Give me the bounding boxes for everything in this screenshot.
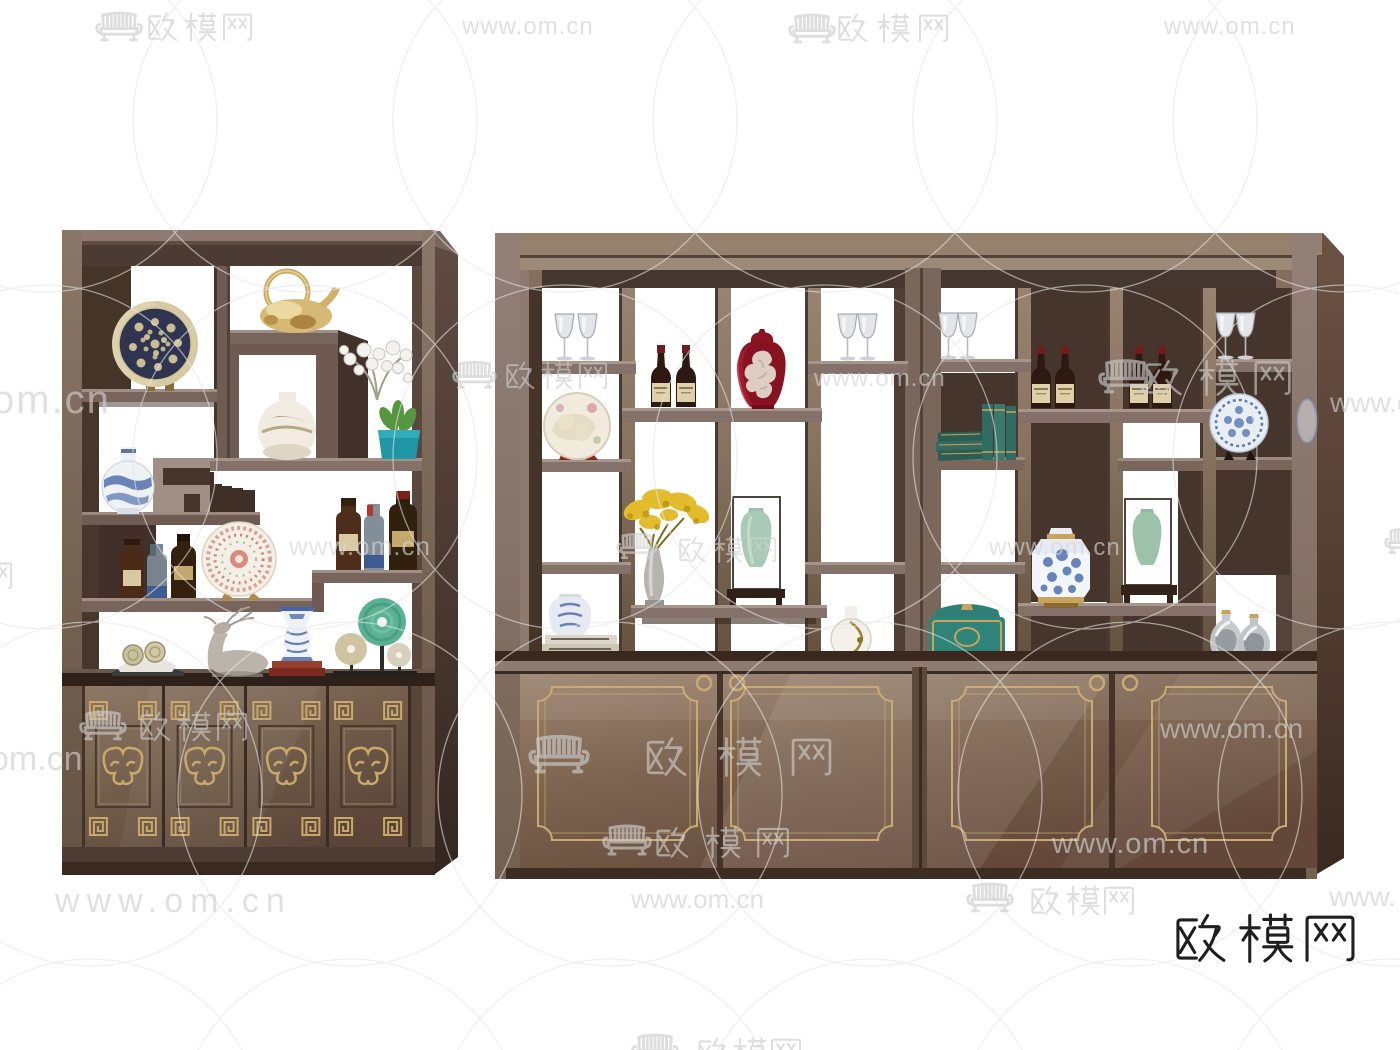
svg-text:www.o: www.o [1329, 387, 1400, 418]
svg-text:www.om.cn: www.om.cn [813, 365, 946, 392]
svg-text:www.om.cn: www.om.cn [630, 884, 764, 914]
svg-text:www.om.cn: www.om.cn [1159, 713, 1303, 744]
svg-text:www.: www. [1328, 881, 1396, 912]
svg-text:www.om.cn: www.om.cn [1051, 828, 1209, 860]
svg-text:www.om.cn: www.om.cn [1163, 13, 1296, 40]
svg-text:om.cn: om.cn [0, 740, 83, 778]
svg-text:www.om.cn: www.om.cn [288, 531, 431, 561]
svg-text:www.om.cn: www.om.cn [54, 882, 292, 920]
svg-text:om.cn: om.cn [0, 378, 111, 422]
svg-text:www.om.cn: www.om.cn [461, 13, 594, 40]
svg-text:www.om.cn: www.om.cn [988, 534, 1121, 561]
